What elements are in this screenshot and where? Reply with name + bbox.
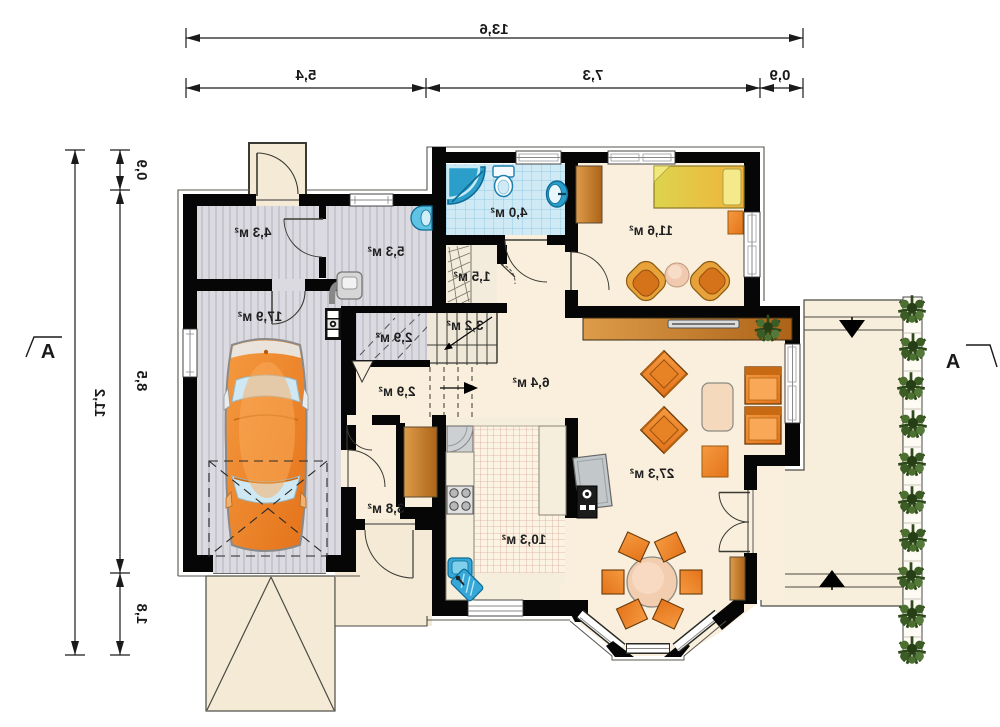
svg-text:3,8 м²: 3,8 м² [367,501,405,516]
svg-text:4,3 м²: 4,3 м² [234,225,272,240]
svg-text:0,9: 0,9 [770,67,791,84]
svg-text:2,9 м²: 2,9 м² [375,330,413,345]
svg-text:17,9 м²: 17,9 м² [237,309,282,324]
svg-text:A: A [41,341,55,363]
svg-text:11,6 м²: 11,6 м² [629,223,673,238]
svg-text:6,4 м²: 6,4 м² [512,375,550,390]
svg-text:4,0 м²: 4,0 м² [490,205,528,220]
svg-text:1,8: 1,8 [133,604,150,625]
svg-text:10,3 м²: 10,3 м² [501,532,546,547]
svg-text:0,9: 0,9 [133,160,150,181]
svg-text:1,5 м²: 1,5 м² [453,269,491,284]
svg-text:2,9 м²: 2,9 м² [378,384,416,399]
svg-text:27,3 м²: 27,3 м² [629,466,674,481]
svg-text:3,2 м²: 3,2 м² [446,318,484,333]
svg-text:5,4: 5,4 [295,67,317,84]
svg-text:8,5: 8,5 [133,371,150,392]
svg-text:A: A [946,351,960,373]
svg-text:7,3: 7,3 [583,67,604,84]
svg-text:13,6: 13,6 [479,21,508,38]
svg-text:11,2: 11,2 [91,389,108,417]
svg-text:5,3 м²: 5,3 м² [367,244,405,259]
